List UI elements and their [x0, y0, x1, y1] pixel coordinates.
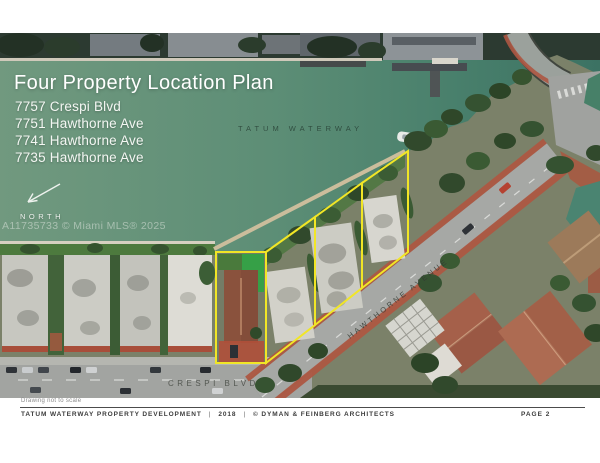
address-7751-hawthorne: 7751 Hawthorne Ave	[15, 116, 215, 131]
crespi-street-label: CRESPI BLVD	[168, 379, 259, 388]
footer-separator: |	[209, 411, 212, 418]
address-7757-crespi: 7757 Crespi Blvd	[15, 99, 215, 114]
footer-separator: |	[243, 411, 246, 418]
apartment-buildings	[2, 255, 212, 355]
mls-watermark: A11735733 © Miami MLS® 2025	[2, 220, 166, 232]
footer-credits: TATUM WATERWAY PROPERTY DEVELOPMENT|2018…	[21, 411, 395, 418]
slide: TATUM WATERWAY HAWTHORNE AVENUE CRESPI B…	[0, 0, 600, 463]
page-number: PAGE 2	[521, 411, 550, 418]
parcel-7757-crespi	[217, 253, 265, 362]
address-7735-hawthorne: 7735 Hawthorne Ave	[15, 150, 215, 165]
water-label: TATUM WATERWAY	[238, 124, 363, 133]
north-indicator: NORTH	[18, 182, 78, 221]
footer-project: TATUM WATERWAY PROPERTY DEVELOPMENT	[21, 411, 202, 418]
scale-note: Drawing not to scale	[21, 398, 81, 404]
footer-credit: © DYMAN & FEINBERG ARCHITECTS	[253, 411, 395, 418]
north-arrow-icon	[18, 182, 66, 206]
address-7741-hawthorne: 7741 Hawthorne Ave	[15, 133, 215, 148]
footer-divider	[20, 407, 585, 408]
plan-title: Four Property Location Plan	[14, 72, 274, 95]
footer-year: 2018	[218, 411, 236, 418]
